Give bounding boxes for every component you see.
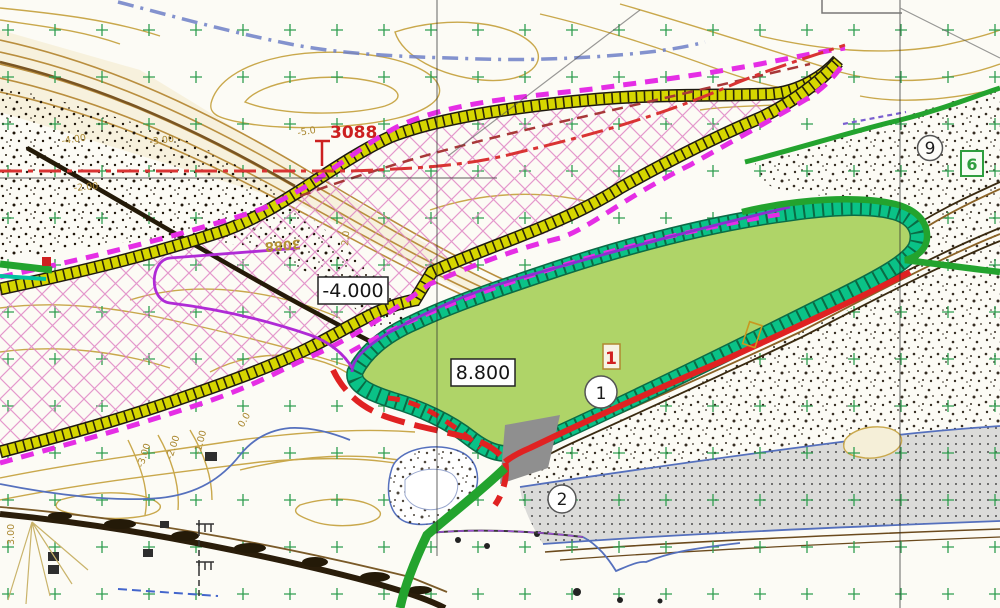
site-plan-map[interactable]: 3088 3088 -4.000 8.800 1 1 2 9 6 -4.00 -… <box>0 0 1000 608</box>
station-label-red: 3088 <box>330 123 377 143</box>
pier-symbol <box>196 524 214 532</box>
contour-label: 3.00 <box>6 524 17 545</box>
contour-label: 2.0 <box>340 230 352 246</box>
red-box-value: 1 <box>605 349 617 369</box>
pier-symbol <box>196 562 214 570</box>
circle-9-value: 9 <box>925 139 936 159</box>
station-label-tan: 3088 <box>264 236 301 254</box>
marker-green-box-6: 6 <box>961 151 983 176</box>
red-node <box>42 257 51 266</box>
site-plan-drawing: 3088 3088 -4.000 8.800 1 1 2 9 6 -4.00 -… <box>0 0 1000 608</box>
circle-1-value: 1 <box>596 384 607 404</box>
dredge-elevation-value: -4.000 <box>322 280 383 302</box>
marker-circle-1: 1 <box>585 376 617 408</box>
circle-2-value: 2 <box>557 490 568 510</box>
contour-label: -2.00 <box>73 181 98 194</box>
elevation-label-dredge: -4.000 <box>318 277 388 304</box>
marker-circle-2: 2 <box>548 485 576 513</box>
marker-red-box-1: 1 <box>603 344 620 369</box>
marker-circle-9: 9 <box>918 136 943 161</box>
elevation-label-fill: 8.800 <box>451 359 515 386</box>
fill-elevation-value: 8.800 <box>456 362 510 384</box>
green-box-value: 6 <box>966 155 977 174</box>
